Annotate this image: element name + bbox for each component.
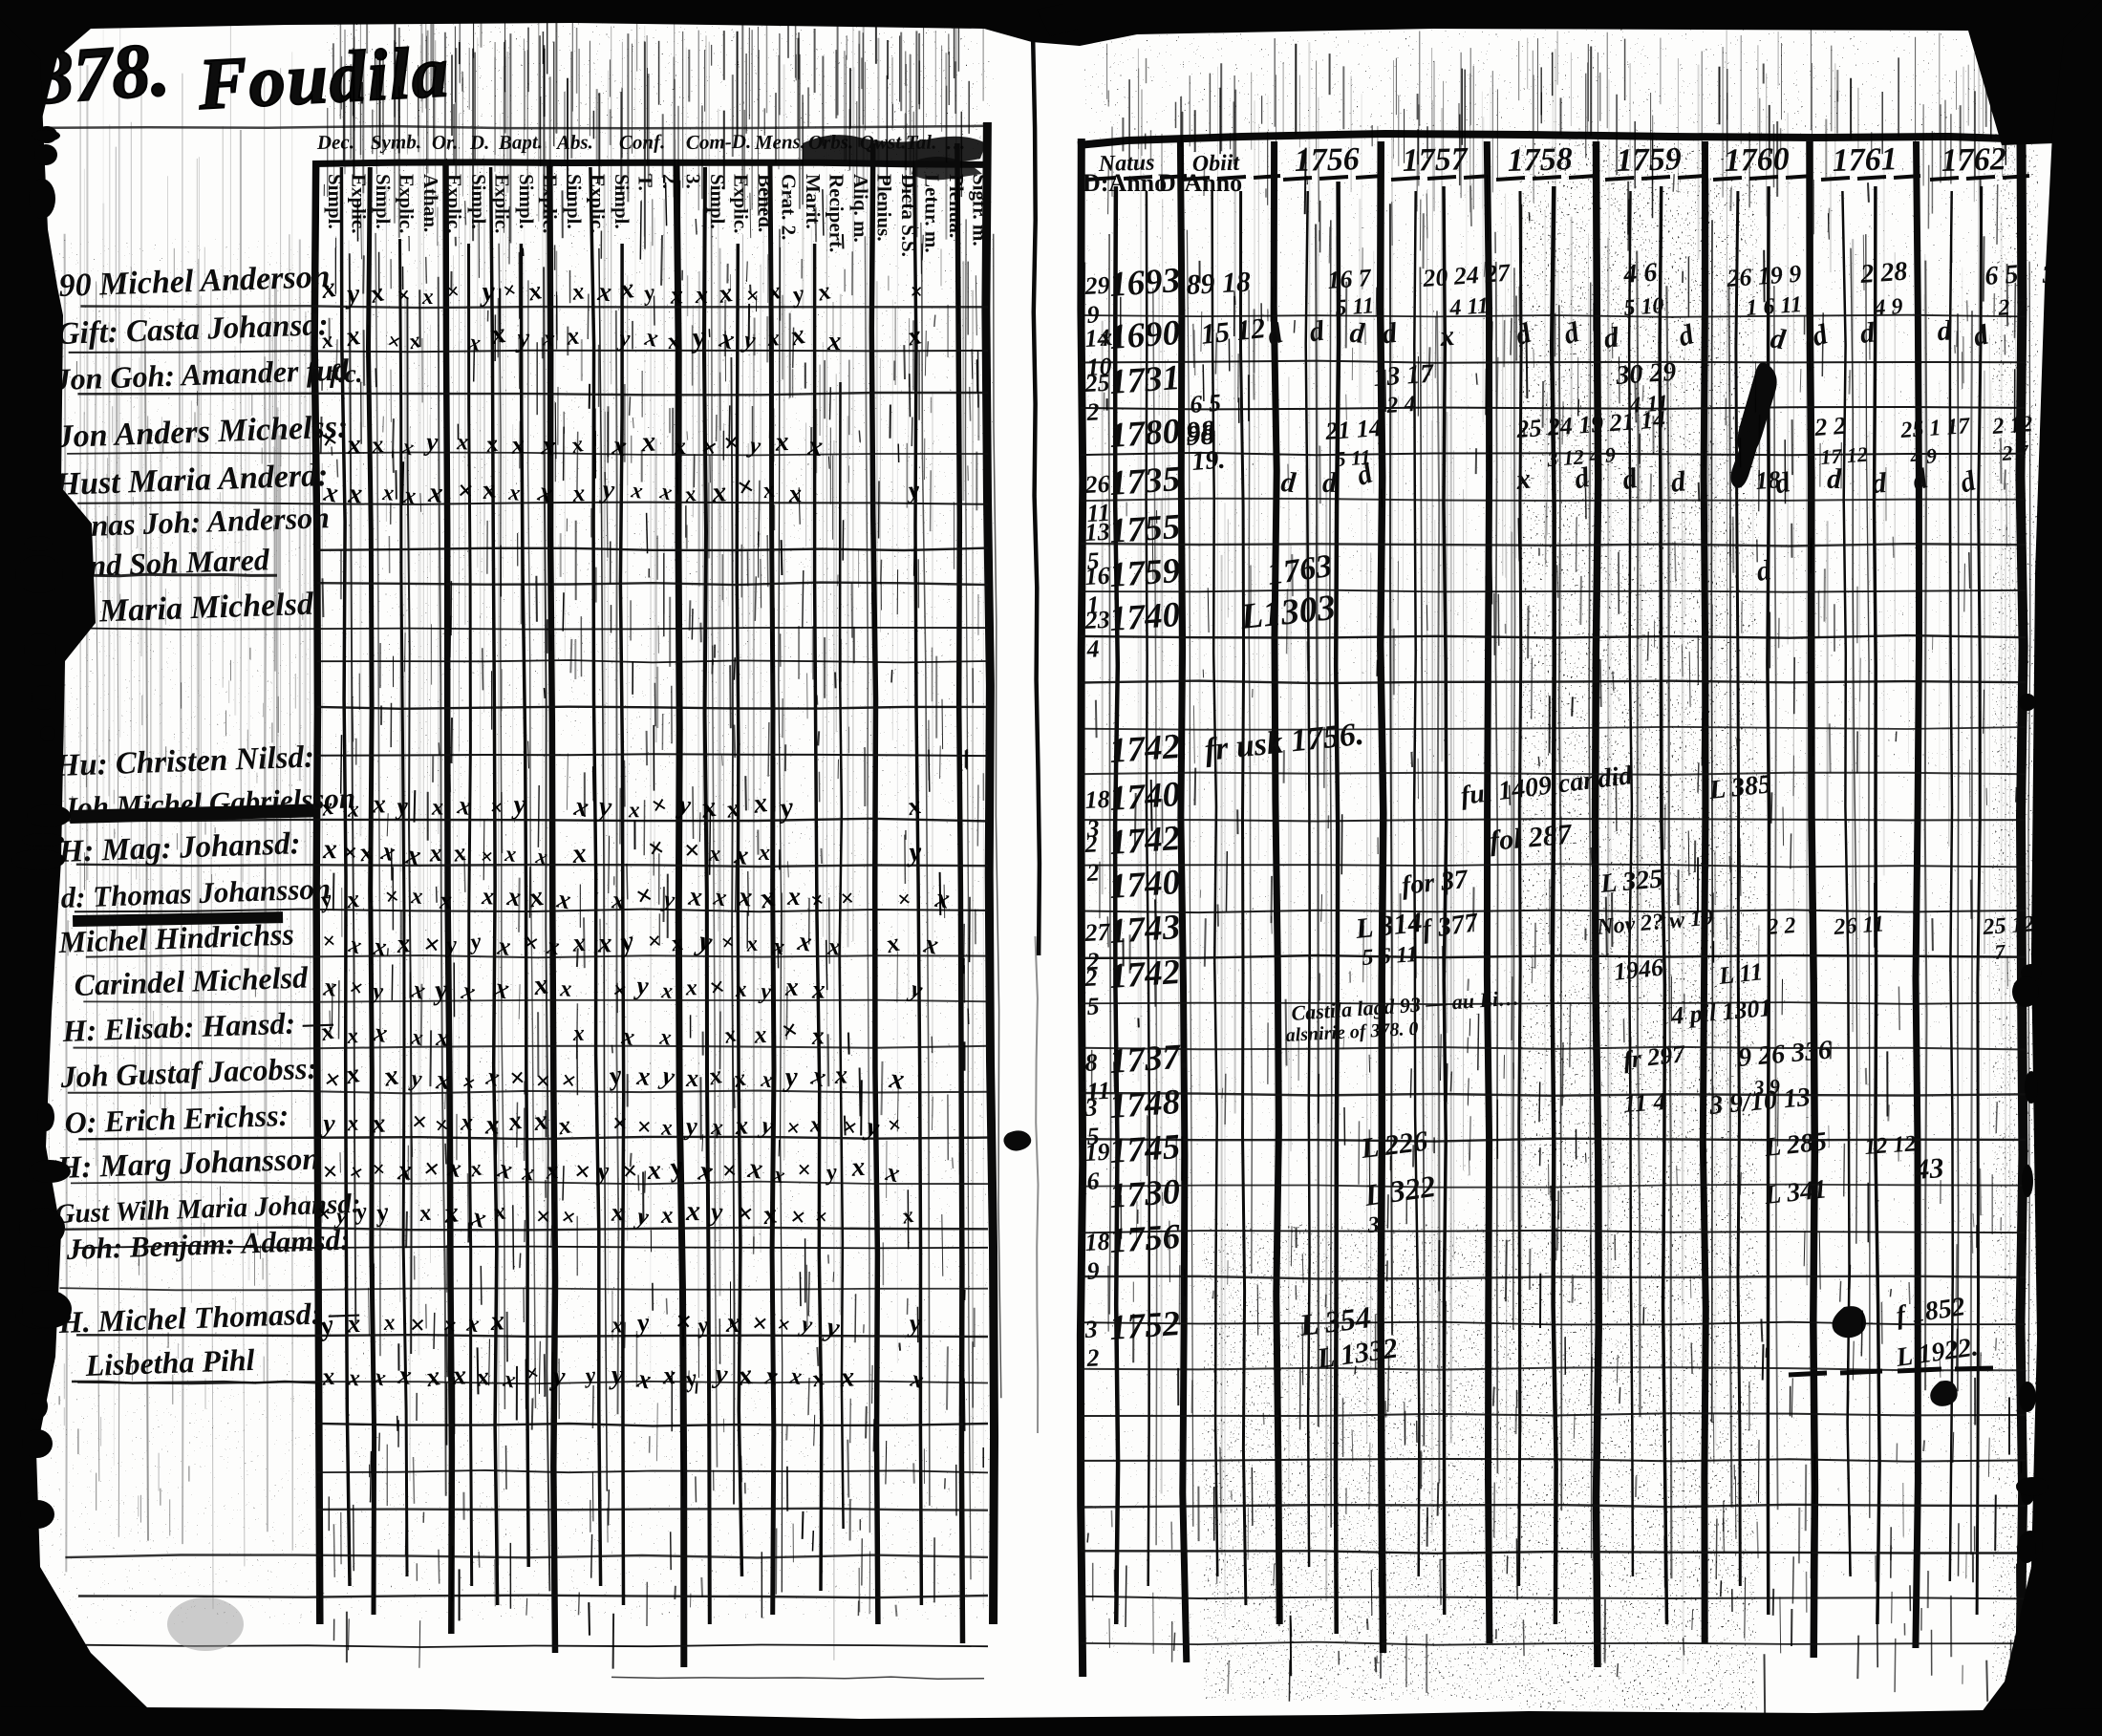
- svg-text:x: x: [435, 1064, 451, 1096]
- svg-text:4 9: 4 9: [1873, 294, 1904, 321]
- svg-text:×: ×: [722, 428, 740, 459]
- svg-text:x: x: [826, 327, 842, 356]
- svg-text:21 14: 21 14: [1323, 414, 1382, 445]
- svg-text:x: x: [570, 479, 586, 507]
- svg-text:29: 29: [1083, 271, 1110, 300]
- svg-text:x: x: [811, 975, 826, 1004]
- svg-text:11 4: 11 4: [1622, 1087, 1666, 1118]
- svg-text:×: ×: [720, 1155, 737, 1185]
- svg-text:x: x: [570, 838, 588, 869]
- svg-text:D.: D.: [469, 131, 490, 154]
- svg-text:1758: 1758: [1507, 141, 1573, 179]
- svg-text:Simpl.: Simpl.: [372, 174, 395, 229]
- svg-text:5 6 11: 5 6 11: [1362, 942, 1419, 971]
- svg-text:1756: 1756: [1108, 1217, 1182, 1261]
- svg-text:2: 2: [1085, 397, 1100, 426]
- svg-text:1740: 1740: [1108, 775, 1182, 819]
- svg-text:30 29: 30 29: [1614, 357, 1677, 391]
- svg-text:x: x: [345, 1023, 359, 1048]
- svg-text:16 7: 16 7: [1326, 264, 1372, 294]
- svg-text:x: x: [441, 1196, 460, 1229]
- svg-text:2: 2: [1085, 1343, 1100, 1372]
- svg-text:d: d: [1322, 467, 1338, 499]
- svg-text:x: x: [628, 798, 640, 823]
- svg-text:1: 1: [1086, 590, 1100, 619]
- svg-text:1740: 1740: [1108, 863, 1182, 907]
- svg-text:15 12: 15 12: [1199, 312, 1267, 351]
- svg-text:Bapt.: Bapt.: [498, 130, 544, 154]
- svg-text:10: 10: [1086, 353, 1112, 381]
- svg-text:x: x: [320, 1362, 336, 1391]
- svg-text:11: 11: [1086, 1077, 1111, 1105]
- svg-text:x: x: [321, 971, 338, 1001]
- svg-text:1780: 1780: [1108, 412, 1182, 456]
- svg-text:x: x: [787, 479, 803, 508]
- svg-text:T.: T.: [634, 174, 657, 191]
- svg-text:x: x: [810, 1021, 826, 1050]
- svg-text:x: x: [372, 789, 386, 819]
- svg-text:x: x: [758, 841, 770, 866]
- svg-text:1742: 1742: [1108, 727, 1182, 771]
- svg-text:6 5: 6 5: [1984, 260, 2019, 291]
- svg-text:Plenius.: Plenius.: [873, 174, 896, 242]
- svg-text:26 11: 26 11: [1833, 911, 1885, 940]
- svg-text:1731: 1731: [1108, 358, 1182, 402]
- svg-text:d: d: [1827, 463, 1843, 495]
- svg-text:x: x: [684, 975, 697, 1000]
- svg-text:9: 9: [1086, 1256, 1100, 1285]
- svg-text:x: x: [382, 1310, 396, 1336]
- svg-text:2 12: 2 12: [1991, 412, 2034, 439]
- svg-text:x: x: [410, 884, 424, 910]
- svg-text:x: x: [370, 1109, 387, 1140]
- svg-text:Simpl.: Simpl.: [563, 174, 586, 229]
- svg-text:x: x: [1438, 320, 1456, 353]
- svg-text:1742: 1742: [1108, 953, 1182, 997]
- svg-text:Simpl.: Simpl.: [515, 174, 538, 229]
- svg-text:Abs.: Abs.: [555, 130, 593, 154]
- svg-text:Letur. m.: Letur. m.: [921, 174, 944, 253]
- svg-text:Marit.: Marit.: [802, 174, 825, 229]
- svg-text:2 7: 2 7: [1997, 294, 2029, 321]
- svg-text:×: ×: [410, 1107, 427, 1138]
- svg-text:18: 18: [1084, 1228, 1110, 1256]
- svg-text:11: 11: [1086, 499, 1111, 527]
- svg-text:x: x: [460, 1108, 474, 1136]
- svg-text:D:Anno: D:Anno: [1083, 169, 1167, 197]
- svg-text:x: x: [849, 1152, 867, 1183]
- svg-text:x: x: [572, 1021, 585, 1046]
- svg-text:1760: 1760: [1724, 141, 1790, 179]
- svg-text:19.: 19.: [1190, 445, 1226, 477]
- svg-text:5 10: 5 10: [1623, 293, 1665, 321]
- svg-text:x: x: [322, 834, 337, 865]
- svg-text:x: x: [430, 794, 443, 820]
- svg-text:x: x: [734, 1111, 749, 1141]
- svg-text:x: x: [685, 1195, 700, 1227]
- svg-text:×: ×: [621, 1156, 639, 1187]
- svg-text:Grat. 2.: Grat. 2.: [778, 174, 801, 240]
- svg-text:x: x: [395, 929, 411, 959]
- svg-text:x: x: [347, 798, 359, 823]
- svg-text:×: ×: [683, 835, 699, 866]
- svg-text:26: 26: [1083, 470, 1110, 499]
- svg-text:x: x: [428, 838, 443, 868]
- svg-text:1759: 1759: [1616, 141, 1682, 179]
- svg-text:y: y: [708, 1196, 723, 1226]
- svg-text:x: x: [345, 429, 362, 461]
- svg-text:y: y: [609, 1361, 624, 1390]
- svg-text:×: ×: [479, 844, 494, 869]
- svg-text:1755: 1755: [1108, 507, 1182, 551]
- svg-text:×: ×: [321, 929, 336, 954]
- svg-text:x: x: [833, 1060, 848, 1089]
- svg-text:1761: 1761: [1832, 141, 1898, 179]
- svg-text:f.c.: f.c.: [330, 359, 362, 388]
- svg-text:x: x: [839, 1362, 856, 1394]
- svg-text:x: x: [734, 977, 747, 1002]
- svg-text:x: x: [826, 932, 842, 961]
- svg-text:×: ×: [910, 280, 923, 305]
- svg-text:5: 5: [1086, 992, 1100, 1020]
- svg-text:x: x: [774, 427, 790, 458]
- svg-text:x: x: [752, 1020, 767, 1049]
- svg-text:1756: 1756: [1294, 141, 1360, 179]
- svg-text:x: x: [672, 433, 687, 461]
- svg-text:4: 4: [1085, 634, 1100, 663]
- svg-text:Dec.: Dec.: [316, 130, 354, 154]
- svg-text:x: x: [489, 1305, 505, 1337]
- svg-text:6: 6: [1086, 1167, 1100, 1195]
- svg-text:1690: 1690: [1108, 313, 1182, 357]
- svg-text:89 18: 89 18: [1186, 267, 1252, 301]
- svg-text:x: x: [381, 481, 396, 506]
- svg-text:d: d: [1937, 315, 1953, 348]
- svg-text:x: x: [725, 1307, 741, 1339]
- svg-text:x: x: [662, 1361, 676, 1389]
- svg-text:1748: 1748: [1108, 1082, 1182, 1126]
- svg-text:×: ×: [409, 1311, 426, 1341]
- svg-text:Athan.: Athan.: [419, 174, 442, 232]
- svg-text:1759: 1759: [1108, 551, 1182, 595]
- svg-text:×: ×: [535, 1201, 551, 1232]
- svg-text:x: x: [397, 1154, 413, 1187]
- svg-text:Conf.: Conf.: [619, 130, 666, 154]
- svg-text:2 28: 2 28: [1858, 257, 1908, 289]
- svg-text:L 325: L 325: [1598, 864, 1664, 899]
- svg-text:1693: 1693: [1108, 261, 1182, 305]
- svg-text:x: x: [346, 1365, 360, 1391]
- svg-text:2 2: 2 2: [1812, 412, 1846, 441]
- svg-text:Mens.: Mens.: [754, 130, 806, 154]
- svg-text:x: x: [660, 1116, 673, 1141]
- svg-text:x: x: [635, 1061, 652, 1091]
- svg-text:1946: 1946: [1613, 954, 1665, 986]
- svg-text:x: x: [509, 430, 525, 460]
- svg-text:x: x: [610, 1197, 625, 1227]
- svg-text:×: ×: [896, 887, 912, 912]
- svg-text:×: ×: [611, 1109, 629, 1140]
- svg-text:1737.: 1737.: [1108, 1037, 1190, 1082]
- svg-text:4 6: 4 6: [1621, 258, 1658, 289]
- svg-text:x: x: [427, 477, 444, 509]
- svg-text:×: ×: [797, 1156, 811, 1184]
- svg-text:×: ×: [457, 476, 475, 507]
- svg-text:Simpl.: Simpl.: [706, 174, 729, 229]
- svg-text:Com-D.: Com-D.: [686, 130, 752, 154]
- svg-text:1743: 1743: [1108, 908, 1182, 952]
- svg-text:×: ×: [508, 1063, 526, 1094]
- svg-text:98: 98: [1185, 415, 1215, 448]
- svg-text:Recipert.: Recipert.: [826, 174, 848, 252]
- svg-text:x: x: [694, 281, 708, 309]
- svg-text:×: ×: [342, 838, 358, 868]
- svg-text:Explic.: Explic.: [396, 174, 418, 233]
- svg-text:x: x: [595, 277, 612, 308]
- svg-text:4 11: 4 11: [1448, 293, 1490, 321]
- svg-text:x: x: [451, 1361, 466, 1391]
- svg-text:1742: 1742: [1108, 819, 1182, 863]
- svg-text:D:Anno: D:Anno: [1158, 169, 1242, 197]
- svg-text:3: 3: [1083, 1315, 1098, 1343]
- svg-text:×: ×: [371, 1157, 386, 1183]
- svg-text:1745: 1745: [1108, 1127, 1182, 1171]
- svg-text:x: x: [611, 885, 627, 914]
- svg-text:x: x: [421, 285, 434, 310]
- svg-text:3: 3: [1085, 814, 1100, 843]
- svg-text:Explic.: Explic.: [348, 174, 371, 233]
- svg-text:x: x: [660, 977, 674, 1003]
- svg-text:×: ×: [321, 1157, 338, 1188]
- svg-text:x: x: [669, 280, 684, 310]
- svg-text:18: 18: [1084, 785, 1110, 814]
- svg-text:Simpl.: Simpl.: [467, 174, 490, 229]
- svg-text:Aliq. m.: Aliq. m.: [849, 174, 872, 243]
- svg-text:Lisbetha Pihl: Lisbetha Pihl: [84, 1342, 255, 1382]
- svg-text:Foudila: Foudila: [196, 32, 452, 125]
- svg-text:1752: 1752: [1108, 1304, 1182, 1348]
- svg-text:2: 2: [1085, 947, 1100, 975]
- svg-text:2: 2: [1085, 858, 1100, 887]
- svg-text:x: x: [809, 1112, 823, 1137]
- svg-text:x: x: [685, 1063, 698, 1092]
- svg-text:3: 3: [1366, 1212, 1381, 1238]
- svg-text:1 6 11: 1 6 11: [1746, 292, 1803, 321]
- svg-text:x: x: [346, 1111, 360, 1137]
- svg-text:2 7: 2 7: [2001, 439, 2030, 465]
- svg-text:1735: 1735: [1108, 460, 1182, 504]
- svg-text:x: x: [439, 887, 452, 914]
- svg-text:5: 5: [1086, 1122, 1100, 1150]
- svg-text:1730: 1730: [1108, 1172, 1182, 1216]
- svg-text:x: x: [597, 928, 612, 958]
- svg-text:13 17: 13 17: [1372, 359, 1435, 393]
- svg-text:x: x: [646, 1155, 662, 1187]
- svg-text:Simpl.: Simpl.: [611, 174, 633, 229]
- svg-text:25 1 17: 25 1 17: [1899, 414, 1972, 443]
- svg-text:x: x: [481, 882, 495, 911]
- svg-text:y: y: [683, 1111, 697, 1140]
- svg-text:Symb.: Symb.: [371, 130, 422, 154]
- svg-text:×: ×: [745, 283, 760, 310]
- svg-text:L 11: L 11: [1717, 957, 1765, 990]
- svg-text:43: 43: [1913, 1152, 1944, 1186]
- svg-text:x: x: [660, 1203, 674, 1229]
- svg-text:x: x: [346, 1308, 362, 1339]
- svg-text:x: x: [786, 882, 802, 911]
- svg-text:×: ×: [535, 1066, 551, 1096]
- svg-text:25 12: 25 12: [1982, 911, 2036, 940]
- svg-text:6 5: 6 5: [1189, 389, 1221, 418]
- svg-text:1740: 1740: [1108, 595, 1182, 639]
- svg-text:x: x: [435, 1023, 450, 1052]
- svg-text:×: ×: [814, 1203, 828, 1229]
- svg-text:Explic.: Explic.: [730, 174, 753, 233]
- svg-text:5: 5: [1086, 547, 1100, 575]
- svg-text:x: x: [710, 475, 728, 508]
- svg-text:×: ×: [445, 279, 461, 305]
- svg-text:x: x: [347, 479, 364, 510]
- svg-text:×: ×: [839, 886, 855, 912]
- svg-text:x: x: [520, 1160, 535, 1187]
- svg-text:2 2: 2 2: [1766, 913, 1797, 940]
- svg-text:2 4: 2 4: [1385, 392, 1417, 418]
- svg-text:x: x: [559, 975, 572, 1002]
- svg-text:12 12: 12 12: [1864, 1131, 1918, 1160]
- svg-text:×: ×: [636, 1112, 652, 1142]
- svg-text:x: x: [1098, 323, 1113, 352]
